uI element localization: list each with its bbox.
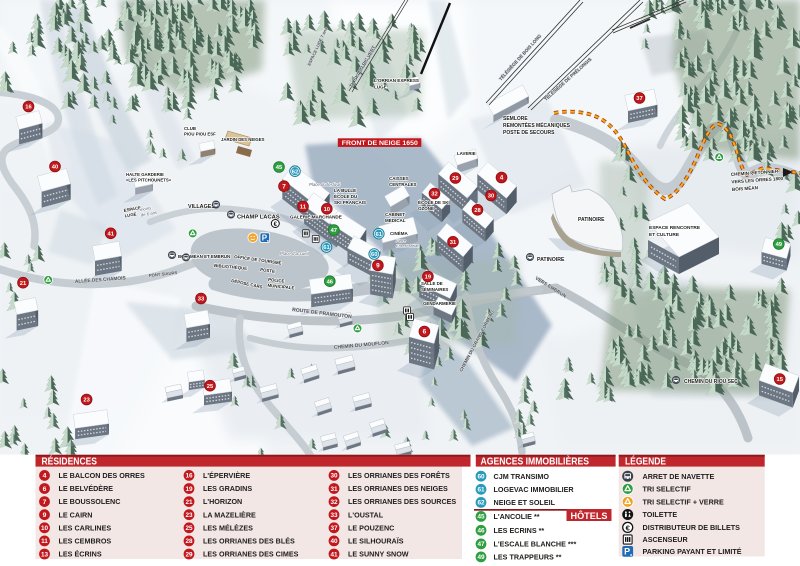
svg-text:L'ORRIAN EXPRESS: L'ORRIAN EXPRESS [374, 78, 419, 83]
svg-text:L'ANCOLIE **: L'ANCOLIE ** [494, 512, 540, 521]
svg-text:11: 11 [41, 538, 48, 545]
svg-text:LES ORRIANES DES SOURCES: LES ORRIANES DES SOURCES [348, 497, 456, 506]
svg-text:28: 28 [474, 208, 481, 214]
svg-text:SKI FRANÇAIS: SKI FRANÇAIS [334, 200, 366, 205]
svg-text:CHEMIN DU RIOU SEC: CHEMIN DU RIOU SEC [684, 379, 738, 385]
svg-text:JARDIN DES NEIGES: JARDIN DES NEIGES [221, 137, 265, 142]
svg-text:L'ESCALE BLANCHE ***: L'ESCALE BLANCHE *** [494, 540, 577, 549]
svg-text:LE POUZENC: LE POUZENC [348, 523, 394, 532]
svg-text:L'HORIZON: L'HORIZON [203, 497, 242, 506]
svg-text:LES GRADINS: LES GRADINS [203, 484, 252, 493]
svg-text:L'ÉPERVIÈRE: L'ÉPERVIÈRE [203, 471, 250, 480]
svg-text:31: 31 [450, 240, 457, 246]
svg-text:GALERIE MARCHANDE: GALERIE MARCHANDE [290, 215, 342, 220]
svg-text:P: P [624, 547, 630, 557]
svg-text:MÉDICAL: MÉDICAL [385, 216, 406, 223]
svg-text:CENTRALES: CENTRALES [389, 182, 417, 187]
svg-text:CLUB: CLUB [184, 126, 196, 131]
svg-text:16: 16 [25, 105, 32, 111]
svg-text:46: 46 [327, 279, 334, 285]
svg-text:9: 9 [376, 263, 380, 270]
svg-text:13: 13 [41, 551, 49, 558]
svg-text:DISTRIBUTEUR DE BILLETS: DISTRIBUTEUR DE BILLETS [643, 523, 741, 532]
svg-text:ET CULTURE: ET CULTURE [649, 232, 680, 238]
svg-text:LÉGENDE: LÉGENDE [625, 455, 666, 468]
svg-text:HÔTELS: HÔTELS [571, 510, 608, 521]
svg-text:LE SUNNY SNOW: LE SUNNY SNOW [348, 550, 409, 559]
svg-text:41: 41 [330, 551, 338, 558]
svg-text:33: 33 [330, 512, 338, 519]
svg-text:9: 9 [43, 512, 47, 519]
svg-text:46: 46 [477, 528, 485, 535]
svg-text:30: 30 [330, 473, 338, 480]
svg-text:PATINOIRE: PATINOIRE [537, 257, 565, 263]
svg-text:16: 16 [185, 473, 193, 480]
svg-text:62: 62 [477, 500, 485, 507]
svg-text:LOGEVAC IMMOBILIER: LOGEVAC IMMOBILIER [494, 485, 575, 494]
svg-text:10: 10 [324, 207, 330, 213]
svg-text:LAVERIE: LAVERIE [457, 151, 476, 156]
svg-text:37: 37 [330, 525, 338, 532]
svg-text:31: 31 [330, 486, 338, 493]
svg-text:45: 45 [477, 514, 485, 521]
svg-text:62: 62 [292, 169, 298, 175]
svg-text:LES ORRIANES DES NEIGES: LES ORRIANES DES NEIGES [348, 484, 448, 493]
svg-text:11: 11 [300, 205, 307, 211]
svg-text:LES MÉLÈZES: LES MÉLÈZES [203, 523, 253, 532]
svg-text:SÉMINAIRES: SÉMINAIRES [421, 287, 448, 292]
svg-text:60: 60 [477, 474, 485, 481]
svg-text:61: 61 [477, 487, 485, 494]
svg-text:LA BULLE: LA BULLE [334, 188, 356, 193]
svg-text:7: 7 [282, 183, 286, 190]
svg-text:CINÉMA: CINÉMA [390, 229, 408, 236]
svg-text:RÉSIDENCES: RÉSIDENCES [42, 455, 98, 468]
svg-text:OZONE: OZONE [418, 206, 434, 211]
svg-text:POSTE DE SECOURS: POSTE DE SECOURS [503, 130, 555, 136]
svg-text:LUGE: LUGE [374, 85, 387, 90]
svg-text:SALLE DE: SALLE DE [421, 281, 443, 286]
svg-text:LE CAIRN: LE CAIRN [59, 510, 93, 519]
svg-text:49: 49 [776, 242, 783, 248]
svg-text:47: 47 [477, 541, 485, 548]
svg-text:CAISSES: CAISSES [389, 176, 409, 181]
svg-text:CABINET: CABINET [385, 212, 405, 217]
svg-text:45: 45 [276, 165, 283, 171]
svg-text:FRONT DE NEIGE 1650: FRONT DE NEIGE 1650 [342, 140, 418, 147]
svg-text:Place d'accueil: Place d'accueil [280, 251, 310, 256]
svg-text:Place du festival: Place du festival [309, 182, 341, 187]
svg-text:ASCENSEUR: ASCENSEUR [643, 535, 689, 544]
svg-text:29: 29 [452, 176, 459, 182]
svg-text:15: 15 [776, 377, 783, 383]
svg-text:AGENCES IMMOBILIÈRES: AGENCES IMMOBILIÈRES [481, 455, 590, 468]
svg-text:TRI SELECTIF: TRI SELECTIF [643, 485, 692, 494]
svg-text:CJM TRANSIMO: CJM TRANSIMO [494, 472, 550, 481]
svg-text:Ernest Mélan: Ernest Mélan [396, 243, 420, 248]
svg-text:LES CEMBROS: LES CEMBROS [59, 537, 112, 546]
svg-text:P: P [262, 234, 268, 243]
svg-text:LE BOUSSOLENC: LE BOUSSOLENC [59, 497, 121, 506]
svg-text:6: 6 [423, 329, 427, 336]
svg-text:23: 23 [83, 398, 90, 404]
svg-text:LES ORRIANES DES CIMES: LES ORRIANES DES CIMES [203, 550, 299, 559]
svg-text:ESPACE RENCONTRE: ESPACE RENCONTRE [649, 225, 701, 231]
svg-text:LES TRAPPEURS **: LES TRAPPEURS ** [494, 553, 562, 562]
svg-text:25: 25 [207, 384, 214, 390]
svg-text:LES ORRIANES DES FORÊTS: LES ORRIANES DES FORÊTS [348, 471, 450, 480]
svg-text:23: 23 [185, 512, 193, 519]
svg-text:LES CARLINES: LES CARLINES [59, 523, 112, 532]
svg-text:30: 30 [488, 194, 494, 200]
svg-text:ÉCOLE DU: ÉCOLE DU [334, 192, 357, 199]
svg-text:49: 49 [477, 554, 485, 561]
svg-text:REMONTÉES MÉCANIQUES: REMONTÉES MÉCANIQUES [503, 121, 571, 129]
svg-text:LE BALCON DES ORRES: LE BALCON DES ORRES [59, 471, 145, 480]
svg-text:4: 4 [43, 473, 47, 480]
svg-text:LE SILHOURAÏS: LE SILHOURAÏS [348, 537, 404, 546]
svg-text:32: 32 [431, 192, 437, 198]
svg-text:«LES PITCHOUNETS»: «LES PITCHOUNETS» [126, 178, 172, 183]
svg-text:LA MAZELIÈRE: LA MAZELIÈRE [203, 510, 256, 519]
svg-text:61: 61 [323, 245, 330, 251]
svg-text:41: 41 [107, 231, 114, 237]
svg-text:19: 19 [425, 275, 432, 281]
svg-text:47: 47 [331, 228, 337, 234]
svg-text:LE BELVÉDÈRE: LE BELVÉDÈRE [59, 484, 114, 493]
svg-text:PARKING PAYANT ET LIMITÉ: PARKING PAYANT ET LIMITÉ [643, 547, 742, 556]
svg-text:VILLAGES: VILLAGES [188, 204, 215, 210]
svg-text:6: 6 [43, 486, 47, 493]
svg-text:19: 19 [185, 486, 193, 493]
svg-text:60: 60 [371, 252, 377, 258]
svg-text:21: 21 [185, 499, 193, 506]
svg-text:28: 28 [185, 538, 193, 545]
svg-text:40: 40 [52, 165, 58, 171]
svg-text:LES ORRIANES DES BLÉS: LES ORRIANES DES BLÉS [203, 537, 295, 546]
svg-text:37: 37 [636, 96, 642, 102]
svg-text:LES ECRINS **: LES ECRINS ** [494, 526, 545, 535]
svg-text:10: 10 [41, 525, 49, 532]
svg-text:61: 61 [376, 232, 383, 238]
svg-text:PATINOIRE: PATINOIRE [578, 217, 605, 223]
svg-text:TRI SELECTIF + VERRE: TRI SELECTIF + VERRE [643, 497, 724, 506]
svg-text:ARRET DE NAVETTE: ARRET DE NAVETTE [643, 472, 715, 481]
svg-text:29: 29 [185, 551, 193, 558]
svg-text:PIOU PIOU ESF: PIOU PIOU ESF [184, 132, 216, 137]
svg-text:SEMLORE: SEMLORE [503, 116, 528, 122]
svg-text:L'OUSTAL: L'OUSTAL [348, 510, 384, 519]
svg-text:HALTE GARDERIE: HALTE GARDERIE [126, 172, 164, 177]
svg-text:7: 7 [43, 499, 47, 506]
svg-text:40: 40 [330, 538, 338, 545]
svg-text:LES ÉCRINS: LES ÉCRINS [59, 550, 102, 559]
svg-text:NEIGE ET SOLEIL: NEIGE ET SOLEIL [494, 498, 556, 507]
svg-text:21: 21 [20, 281, 27, 287]
svg-text:33: 33 [198, 297, 205, 303]
svg-text:4: 4 [500, 175, 504, 182]
svg-text:TOILETTE: TOILETTE [643, 510, 678, 519]
svg-text:25: 25 [185, 525, 193, 532]
svg-text:32: 32 [330, 499, 338, 506]
svg-text:GENDARMERIE: GENDARMERIE [423, 301, 456, 306]
